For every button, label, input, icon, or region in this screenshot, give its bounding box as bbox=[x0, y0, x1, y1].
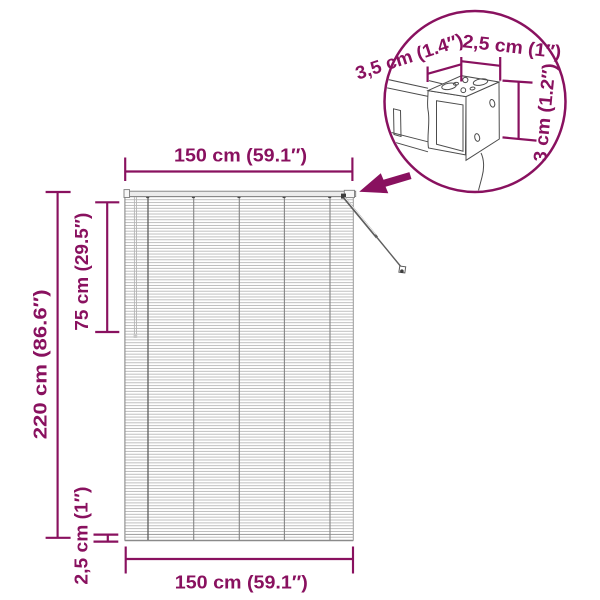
svg-text:2,5 cm (1″): 2,5 cm (1″) bbox=[70, 487, 91, 585]
svg-text:75 cm (29.5″): 75 cm (29.5″) bbox=[71, 213, 92, 331]
svg-text:150 cm (59.1″): 150 cm (59.1″) bbox=[174, 144, 307, 165]
svg-text:220 cm (86.6″): 220 cm (86.6″) bbox=[29, 289, 50, 439]
svg-text:150 cm (59.1″): 150 cm (59.1″) bbox=[175, 572, 308, 593]
